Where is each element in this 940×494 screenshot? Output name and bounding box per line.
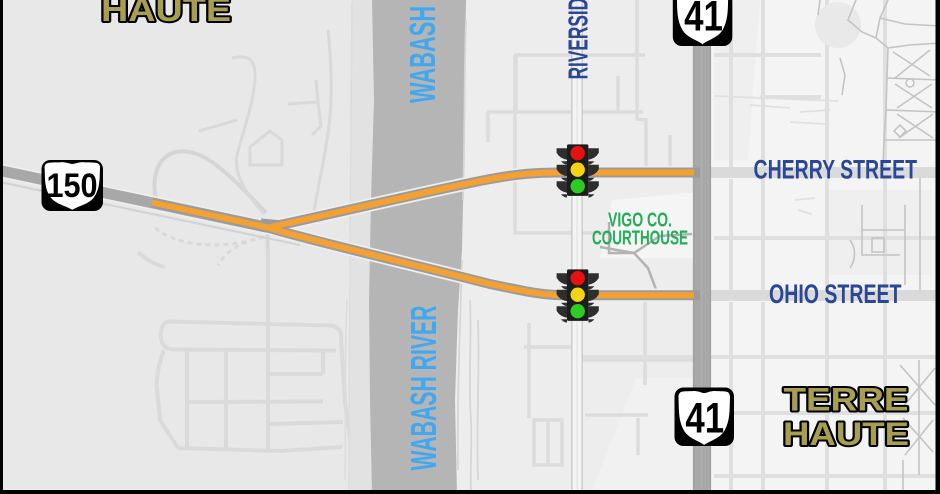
svg-text:CHERRY STREET: CHERRY STREET xyxy=(754,155,918,185)
svg-text:41: 41 xyxy=(684,0,723,40)
svg-text:HAUTE: HAUTE xyxy=(101,0,231,28)
svg-text:WABASH RIVER: WABASH RIVER xyxy=(403,306,444,471)
svg-text:HAUTE: HAUTE xyxy=(783,416,909,452)
svg-text:RIVERSIDE: RIVERSIDE xyxy=(562,0,593,79)
svg-text:41: 41 xyxy=(685,395,724,442)
svg-text:TERRE: TERRE xyxy=(784,382,909,418)
svg-text:WABASH RIVER: WABASH RIVER xyxy=(402,0,443,103)
svg-text:150: 150 xyxy=(46,167,97,205)
svg-text:COURTHOUSE: COURTHOUSE xyxy=(592,227,688,250)
svg-text:OHIO STREET: OHIO STREET xyxy=(769,279,902,309)
